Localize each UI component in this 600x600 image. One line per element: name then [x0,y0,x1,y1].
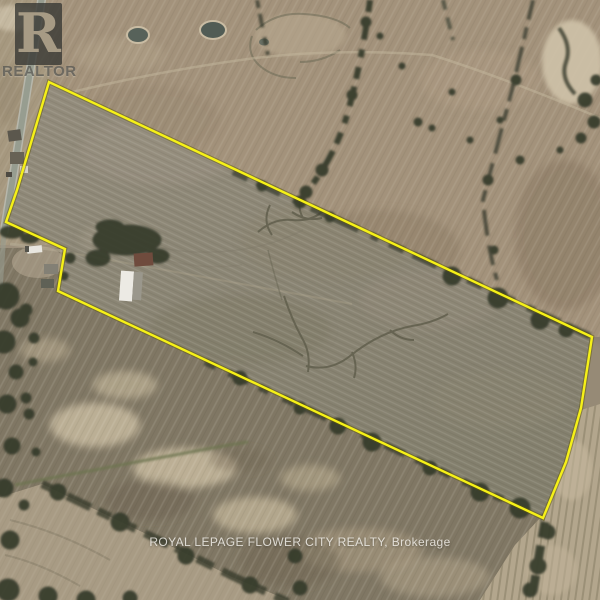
realtor-logo-icon: R [15,3,62,65]
satellite-imagery [0,0,600,600]
realtor-logo-letter: R [16,6,61,60]
dark-shed [41,279,54,288]
listing-photo: R REALTOR ROYAL LEPAGE FLOWER CITY REALT… [0,0,600,600]
barn-white-roof [119,271,134,302]
brokerage-watermark: ROYAL LEPAGE FLOWER CITY REALTY, Brokera… [0,535,600,549]
roadside-house [7,129,21,142]
realtor-logo-label: REALTOR [2,63,92,80]
roadside-house [10,152,24,164]
shed [44,264,58,274]
farmhouse [134,252,154,266]
